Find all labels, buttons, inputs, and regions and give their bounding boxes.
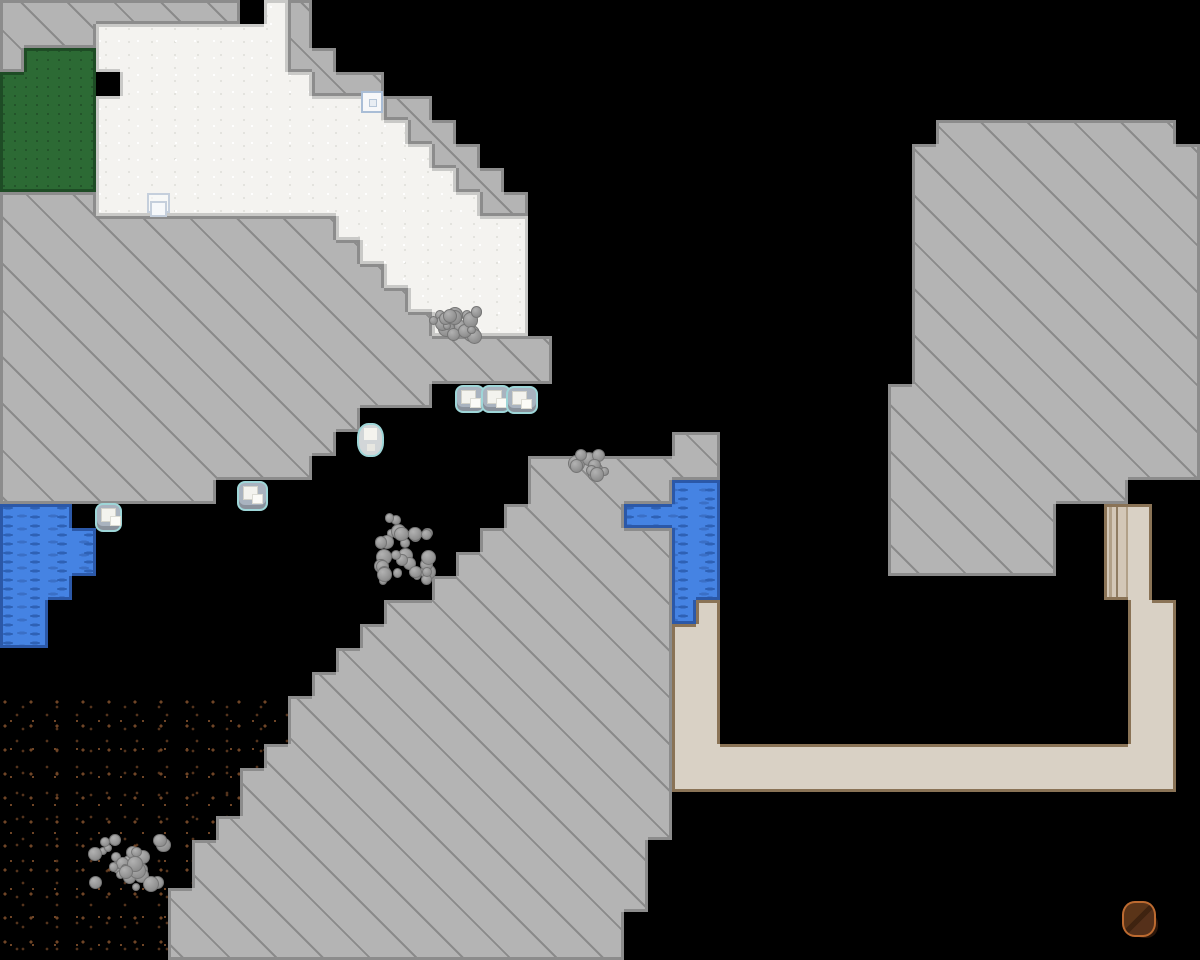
map-tile-rock[interactable] [384, 816, 408, 840]
map-tile-rock[interactable] [912, 312, 936, 336]
map-tile-rock[interactable] [936, 192, 960, 216]
map-tile-void[interactable] [456, 432, 480, 456]
map-tile-rock[interactable] [648, 720, 672, 744]
map-tile-rock[interactable] [408, 360, 432, 384]
map-tile-rock[interactable] [984, 552, 1008, 576]
map-tile-rock[interactable] [288, 24, 312, 48]
map-tile-rock[interactable] [192, 288, 216, 312]
map-tile-void[interactable] [672, 840, 696, 864]
map-tile-void[interactable] [1056, 96, 1080, 120]
map-tile-void[interactable] [1056, 792, 1080, 816]
map-tile-void[interactable] [840, 552, 864, 576]
map-tile-floor[interactable] [1080, 744, 1104, 768]
map-tile-rock[interactable] [1080, 288, 1104, 312]
map-tile-void[interactable] [624, 192, 648, 216]
map-tile-void[interactable] [360, 456, 384, 480]
map-tile-rock[interactable] [504, 912, 528, 936]
map-tile-void[interactable] [504, 480, 528, 504]
map-tile-rock[interactable] [504, 840, 528, 864]
map-tile-rock[interactable] [912, 480, 936, 504]
map-tile-rock[interactable] [384, 936, 408, 960]
map-tile-rock[interactable] [96, 216, 120, 240]
map-tile-void[interactable] [1056, 0, 1080, 24]
map-tile-rock[interactable] [984, 192, 1008, 216]
map-tile-void[interactable] [504, 24, 528, 48]
map-tile-rock[interactable] [936, 240, 960, 264]
map-tile-grass[interactable] [48, 144, 72, 168]
map-tile-rock[interactable] [672, 456, 696, 480]
map-tile-snow[interactable] [456, 192, 480, 216]
map-tile-void[interactable] [1056, 552, 1080, 576]
map-tile-void[interactable] [696, 792, 720, 816]
map-tile-floor[interactable] [696, 600, 720, 624]
map-tile-rock[interactable] [312, 432, 336, 456]
map-tile-soil[interactable] [24, 792, 48, 816]
map-tile-rock[interactable] [96, 288, 120, 312]
map-tile-void[interactable] [408, 480, 432, 504]
map-tile-rock[interactable] [384, 624, 408, 648]
map-tile-void[interactable] [768, 504, 792, 528]
map-tile-rock[interactable] [912, 528, 936, 552]
map-tile-rock[interactable] [912, 408, 936, 432]
map-tile-rock[interactable] [576, 648, 600, 672]
map-tile-void[interactable] [816, 192, 840, 216]
map-tile-soil[interactable] [144, 768, 168, 792]
map-tile-soil[interactable] [120, 768, 144, 792]
map-tile-void[interactable] [744, 888, 768, 912]
map-tile-void[interactable] [192, 648, 216, 672]
map-tile-rock[interactable] [288, 336, 312, 360]
map-tile-rock[interactable] [120, 288, 144, 312]
map-tile-snow[interactable] [168, 168, 192, 192]
map-tile-rock[interactable] [192, 864, 216, 888]
map-tile-rock[interactable] [288, 696, 312, 720]
map-tile-snow[interactable] [456, 216, 480, 240]
map-tile-void[interactable] [120, 504, 144, 528]
map-tile-rock[interactable] [1128, 168, 1152, 192]
map-tile-floor[interactable] [1128, 744, 1152, 768]
map-tile-rock[interactable] [432, 600, 456, 624]
map-tile-rock[interactable] [1032, 168, 1056, 192]
map-tile-rock[interactable] [336, 744, 360, 768]
map-tile-void[interactable] [816, 504, 840, 528]
map-tile-snow[interactable] [96, 24, 120, 48]
map-tile-void[interactable] [1176, 768, 1200, 792]
map-tile-void[interactable] [816, 24, 840, 48]
map-tile-rock[interactable] [672, 432, 696, 456]
map-tile-rock[interactable] [504, 360, 528, 384]
map-tile-rock[interactable] [624, 888, 648, 912]
map-tile-rock[interactable] [144, 480, 168, 504]
map-tile-void[interactable] [744, 192, 768, 216]
map-tile-rock[interactable] [24, 0, 48, 24]
map-tile-rock[interactable] [144, 408, 168, 432]
map-tile-rock[interactable] [1128, 432, 1152, 456]
map-tile-void[interactable] [768, 936, 792, 960]
map-tile-void[interactable] [624, 360, 648, 384]
map-tile-void[interactable] [888, 936, 912, 960]
map-tile-void[interactable] [552, 72, 576, 96]
map-tile-rock[interactable] [240, 936, 264, 960]
map-tile-void[interactable] [888, 336, 912, 360]
map-tile-rock[interactable] [288, 48, 312, 72]
map-tile-void[interactable] [480, 144, 504, 168]
map-tile-void[interactable] [1056, 696, 1080, 720]
map-tile-void[interactable] [840, 408, 864, 432]
map-tile-void[interactable] [72, 576, 96, 600]
map-tile-rock[interactable] [96, 264, 120, 288]
map-tile-rock[interactable] [912, 264, 936, 288]
map-tile-rock[interactable] [480, 168, 504, 192]
map-tile-rock[interactable] [504, 552, 528, 576]
map-tile-soil[interactable] [0, 696, 24, 720]
map-tile-snow[interactable] [432, 168, 456, 192]
map-tile-void[interactable] [672, 48, 696, 72]
map-tile-rock[interactable] [48, 480, 72, 504]
map-tile-void[interactable] [576, 384, 600, 408]
map-tile-void[interactable] [672, 408, 696, 432]
map-tile-void[interactable] [672, 120, 696, 144]
map-tile-rock[interactable] [192, 456, 216, 480]
map-tile-void[interactable] [792, 576, 816, 600]
map-tile-void[interactable] [1176, 576, 1200, 600]
map-tile-snow[interactable] [216, 168, 240, 192]
map-tile-void[interactable] [768, 648, 792, 672]
map-tile-rock[interactable] [1128, 144, 1152, 168]
map-tile-void[interactable] [1032, 672, 1056, 696]
map-tile-rock[interactable] [0, 0, 24, 24]
map-tile-void[interactable] [888, 360, 912, 384]
map-tile-rock[interactable] [264, 408, 288, 432]
map-tile-void[interactable] [96, 72, 120, 96]
map-tile-void[interactable] [648, 288, 672, 312]
map-tile-rock[interactable] [1152, 456, 1176, 480]
map-tile-rock[interactable] [120, 0, 144, 24]
map-tile-rock[interactable] [432, 360, 456, 384]
map-tile-rock[interactable] [216, 288, 240, 312]
map-tile-rock[interactable] [1152, 360, 1176, 384]
map-tile-rock[interactable] [240, 288, 264, 312]
map-tile-rock[interactable] [432, 816, 456, 840]
map-tile-rock[interactable] [48, 360, 72, 384]
map-tile-void[interactable] [936, 816, 960, 840]
map-tile-void[interactable] [144, 528, 168, 552]
map-tile-void[interactable] [552, 168, 576, 192]
map-tile-rock[interactable] [336, 336, 360, 360]
map-tile-rock[interactable] [504, 504, 528, 528]
map-tile-void[interactable] [816, 408, 840, 432]
map-tile-rock[interactable] [984, 216, 1008, 240]
map-tile-rock[interactable] [360, 360, 384, 384]
map-tile-rock[interactable] [600, 528, 624, 552]
map-tile-rock[interactable] [240, 384, 264, 408]
map-tile-floor[interactable] [1104, 768, 1128, 792]
map-tile-void[interactable] [192, 672, 216, 696]
map-tile-rock[interactable] [456, 624, 480, 648]
map-tile-rock[interactable] [1032, 144, 1056, 168]
map-tile-floor[interactable] [1152, 672, 1176, 696]
map-tile-rock[interactable] [528, 816, 552, 840]
map-tile-void[interactable] [552, 0, 576, 24]
map-tile-rock[interactable] [480, 840, 504, 864]
map-tile-void[interactable] [792, 120, 816, 144]
map-tile-void[interactable] [816, 792, 840, 816]
map-tile-soil[interactable] [48, 840, 72, 864]
map-tile-soil[interactable] [120, 744, 144, 768]
map-tile-rock[interactable] [504, 336, 528, 360]
map-tile-rock[interactable] [648, 600, 672, 624]
map-tile-void[interactable] [1080, 912, 1104, 936]
map-tile-void[interactable] [816, 936, 840, 960]
map-tile-snow[interactable] [240, 192, 264, 216]
map-tile-void[interactable] [1032, 864, 1056, 888]
map-tile-rock[interactable] [24, 216, 48, 240]
map-tile-void[interactable] [96, 552, 120, 576]
map-tile-void[interactable] [648, 408, 672, 432]
map-tile-snow[interactable] [360, 240, 384, 264]
map-tile-rock[interactable] [360, 936, 384, 960]
map-tile-rock[interactable] [360, 696, 384, 720]
map-tile-floor[interactable] [696, 720, 720, 744]
map-tile-void[interactable] [408, 0, 432, 24]
map-tile-void[interactable] [312, 456, 336, 480]
map-tile-rock[interactable] [1032, 288, 1056, 312]
map-tile-rock[interactable] [360, 672, 384, 696]
map-tile-rock[interactable] [144, 432, 168, 456]
map-tile-void[interactable] [1152, 96, 1176, 120]
map-tile-void[interactable] [864, 912, 888, 936]
map-tile-void[interactable] [432, 0, 456, 24]
map-tile-snow[interactable] [456, 240, 480, 264]
map-tile-void[interactable] [624, 24, 648, 48]
map-tile-void[interactable] [1032, 648, 1056, 672]
map-tile-void[interactable] [888, 216, 912, 240]
map-tile-rock[interactable] [984, 480, 1008, 504]
map-tile-void[interactable] [120, 528, 144, 552]
map-tile-void[interactable] [1176, 840, 1200, 864]
map-tile-rock[interactable] [1056, 120, 1080, 144]
map-tile-void[interactable] [432, 408, 456, 432]
map-tile-rock[interactable] [408, 840, 432, 864]
map-tile-void[interactable] [600, 96, 624, 120]
map-tile-rock[interactable] [600, 504, 624, 528]
map-tile-void[interactable] [672, 24, 696, 48]
map-tile-void[interactable] [528, 96, 552, 120]
map-tile-void[interactable] [96, 624, 120, 648]
map-tile-rock[interactable] [888, 504, 912, 528]
map-tile-floor[interactable] [696, 624, 720, 648]
map-tile-rock[interactable] [1152, 120, 1176, 144]
map-tile-snow[interactable] [480, 216, 504, 240]
map-tile-rock[interactable] [552, 696, 576, 720]
map-tile-rock[interactable] [936, 504, 960, 528]
map-tile-rock[interactable] [24, 336, 48, 360]
map-tile-rock[interactable] [960, 312, 984, 336]
map-tile-void[interactable] [744, 24, 768, 48]
map-tile-void[interactable] [936, 792, 960, 816]
map-tile-void[interactable] [744, 600, 768, 624]
map-tile-rock[interactable] [336, 840, 360, 864]
map-tile-rock[interactable] [624, 696, 648, 720]
map-tile-void[interactable] [744, 336, 768, 360]
map-tile-void[interactable] [384, 480, 408, 504]
map-tile-void[interactable] [768, 696, 792, 720]
map-tile-void[interactable] [552, 192, 576, 216]
map-tile-void[interactable] [504, 168, 528, 192]
map-tile-void[interactable] [504, 48, 528, 72]
map-tile-rock[interactable] [936, 360, 960, 384]
map-tile-void[interactable] [120, 624, 144, 648]
map-tile-rock[interactable] [960, 192, 984, 216]
map-tile-rock[interactable] [288, 936, 312, 960]
map-tile-void[interactable] [0, 672, 24, 696]
map-tile-rock[interactable] [144, 384, 168, 408]
map-tile-rock[interactable] [312, 936, 336, 960]
map-tile-rock[interactable] [576, 864, 600, 888]
map-tile-rock[interactable] [504, 648, 528, 672]
map-tile-rock[interactable] [192, 408, 216, 432]
map-tile-void[interactable] [840, 432, 864, 456]
map-tile-bridge[interactable] [1104, 552, 1128, 576]
map-tile-water[interactable] [0, 624, 24, 648]
map-tile-rock[interactable] [960, 264, 984, 288]
map-tile-soil[interactable] [192, 744, 216, 768]
map-tile-rock[interactable] [1032, 480, 1056, 504]
map-tile-rock[interactable] [216, 888, 240, 912]
map-tile-water[interactable] [696, 552, 720, 576]
map-tile-void[interactable] [816, 648, 840, 672]
map-tile-snow[interactable] [96, 120, 120, 144]
map-tile-water[interactable] [696, 480, 720, 504]
map-tile-rock[interactable] [336, 264, 360, 288]
map-tile-rock[interactable] [192, 840, 216, 864]
map-tile-floor[interactable] [1152, 624, 1176, 648]
map-tile-rock[interactable] [528, 480, 552, 504]
map-tile-rock[interactable] [48, 216, 72, 240]
map-tile-floor[interactable] [672, 720, 696, 744]
map-tile-void[interactable] [840, 264, 864, 288]
map-tile-void[interactable] [744, 384, 768, 408]
map-tile-rock[interactable] [456, 168, 480, 192]
map-tile-void[interactable] [984, 96, 1008, 120]
map-tile-rock[interactable] [408, 768, 432, 792]
map-tile-void[interactable] [768, 432, 792, 456]
map-tile-void[interactable] [1008, 0, 1032, 24]
map-tile-void[interactable] [240, 624, 264, 648]
map-tile-void[interactable] [1176, 552, 1200, 576]
map-tile-void[interactable] [672, 912, 696, 936]
map-tile-void[interactable] [840, 936, 864, 960]
map-tile-void[interactable] [672, 264, 696, 288]
map-tile-void[interactable] [744, 480, 768, 504]
map-tile-soil[interactable] [24, 936, 48, 960]
map-tile-void[interactable] [1176, 648, 1200, 672]
map-tile-void[interactable] [144, 648, 168, 672]
map-tile-void[interactable] [792, 648, 816, 672]
map-tile-void[interactable] [144, 504, 168, 528]
map-tile-rock[interactable] [312, 816, 336, 840]
map-tile-void[interactable] [384, 432, 408, 456]
map-tile-rock[interactable] [192, 312, 216, 336]
map-tile-snow[interactable] [168, 120, 192, 144]
map-tile-rock[interactable] [1056, 336, 1080, 360]
map-tile-snow[interactable] [240, 72, 264, 96]
map-tile-void[interactable] [96, 600, 120, 624]
map-tile-void[interactable] [816, 672, 840, 696]
map-tile-void[interactable] [936, 696, 960, 720]
map-tile-grass[interactable] [24, 48, 48, 72]
map-tile-void[interactable] [888, 696, 912, 720]
map-tile-void[interactable] [384, 48, 408, 72]
map-tile-rock[interactable] [408, 720, 432, 744]
map-tile-rock[interactable] [96, 240, 120, 264]
map-tile-soil[interactable] [96, 696, 120, 720]
map-tile-rock[interactable] [480, 768, 504, 792]
map-tile-rock[interactable] [24, 312, 48, 336]
map-tile-void[interactable] [1008, 816, 1032, 840]
map-tile-void[interactable] [864, 624, 888, 648]
map-tile-rock[interactable] [552, 912, 576, 936]
map-tile-rock[interactable] [1032, 336, 1056, 360]
map-tile-void[interactable] [792, 816, 816, 840]
map-tile-rock[interactable] [408, 600, 432, 624]
map-tile-soil[interactable] [144, 912, 168, 936]
map-tile-void[interactable] [960, 912, 984, 936]
map-tile-rock[interactable] [360, 288, 384, 312]
map-tile-rock[interactable] [288, 888, 312, 912]
map-tile-rock[interactable] [480, 696, 504, 720]
map-tile-void[interactable] [696, 24, 720, 48]
map-tile-rock[interactable] [600, 696, 624, 720]
map-tile-rock[interactable] [432, 648, 456, 672]
map-tile-void[interactable] [768, 336, 792, 360]
map-tile-rock[interactable] [696, 432, 720, 456]
map-tile-void[interactable] [792, 24, 816, 48]
map-tile-void[interactable] [720, 792, 744, 816]
map-tile-void[interactable] [432, 384, 456, 408]
map-tile-soil[interactable] [48, 912, 72, 936]
map-tile-soil[interactable] [192, 720, 216, 744]
map-tile-snow[interactable] [288, 72, 312, 96]
map-tile-void[interactable] [888, 792, 912, 816]
map-tile-rock[interactable] [456, 864, 480, 888]
map-tile-void[interactable] [720, 384, 744, 408]
map-tile-snow[interactable] [144, 96, 168, 120]
map-tile-snow[interactable] [336, 168, 360, 192]
map-tile-snow[interactable] [312, 168, 336, 192]
map-tile-void[interactable] [936, 912, 960, 936]
map-tile-snow[interactable] [264, 48, 288, 72]
map-tile-soil[interactable] [192, 768, 216, 792]
map-tile-void[interactable] [960, 792, 984, 816]
map-tile-void[interactable] [432, 96, 456, 120]
map-tile-rock[interactable] [1032, 432, 1056, 456]
map-tile-void[interactable] [528, 144, 552, 168]
map-tile-void[interactable] [648, 912, 672, 936]
map-tile-rock[interactable] [600, 552, 624, 576]
map-tile-rock[interactable] [576, 744, 600, 768]
map-tile-snow[interactable] [192, 192, 216, 216]
map-tile-grass[interactable] [72, 144, 96, 168]
map-tile-void[interactable] [1104, 792, 1128, 816]
map-tile-rock[interactable] [1152, 288, 1176, 312]
map-tile-soil[interactable] [24, 696, 48, 720]
map-tile-rock[interactable] [1176, 408, 1200, 432]
map-tile-rock[interactable] [528, 864, 552, 888]
map-tile-rock[interactable] [552, 936, 576, 960]
map-tile-void[interactable] [1056, 864, 1080, 888]
map-tile-void[interactable] [744, 0, 768, 24]
